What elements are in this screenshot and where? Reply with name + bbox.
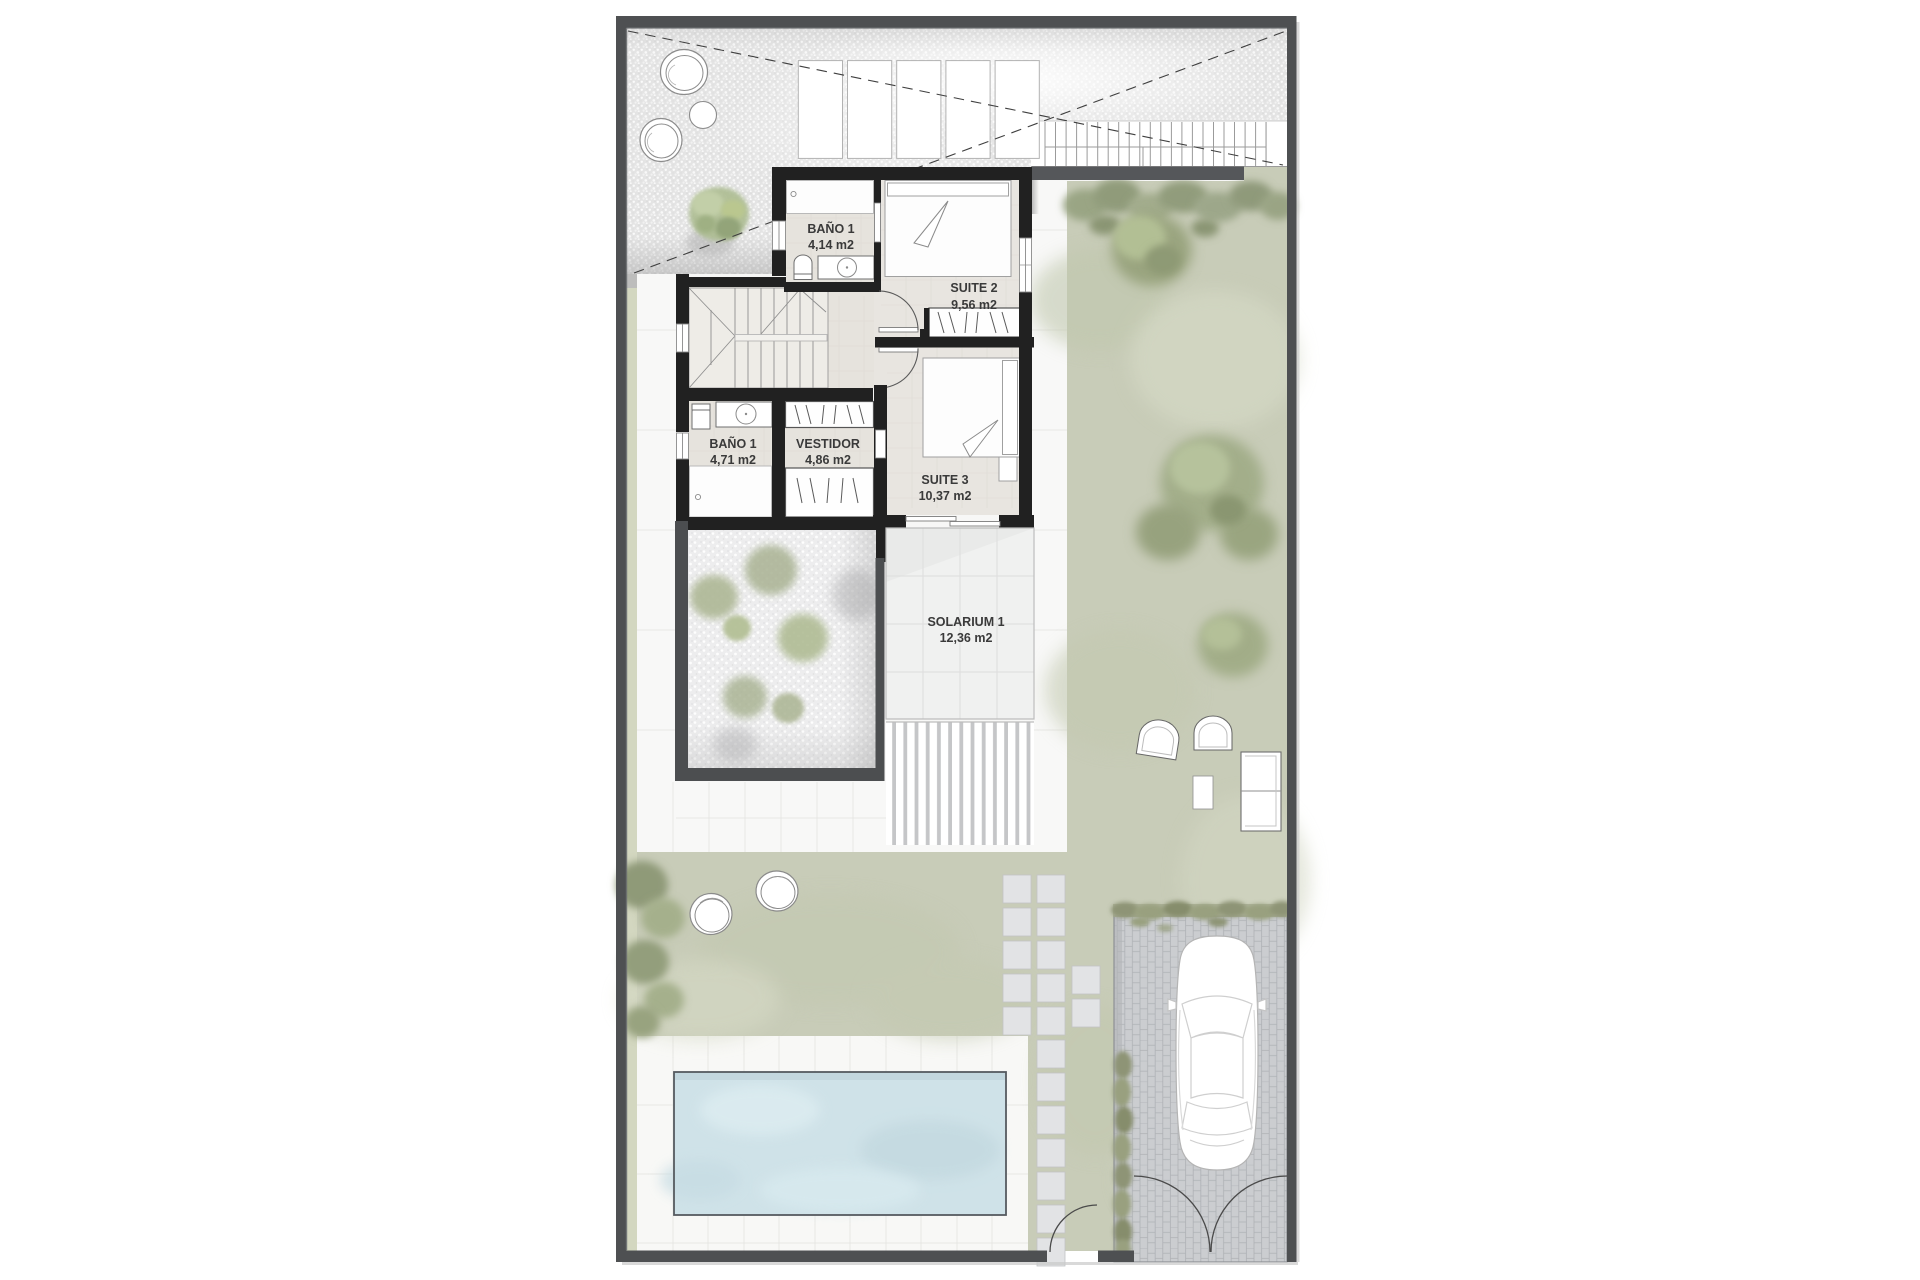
svg-text:SOLARIUM 1: SOLARIUM 1 <box>927 615 1004 629</box>
svg-text:SUITE 2: SUITE 2 <box>950 281 997 295</box>
svg-text:10,37 m2: 10,37 m2 <box>919 489 972 503</box>
svg-text:4,14 m2: 4,14 m2 <box>808 238 854 252</box>
svg-text:SUITE 3: SUITE 3 <box>921 473 968 487</box>
svg-text:9,56 m2: 9,56 m2 <box>951 298 997 312</box>
svg-text:4,86 m2: 4,86 m2 <box>805 453 851 467</box>
svg-text:BAÑO 1: BAÑO 1 <box>709 436 756 451</box>
svg-text:BAÑO 1: BAÑO 1 <box>807 221 854 236</box>
svg-text:VESTIDOR: VESTIDOR <box>796 437 860 451</box>
svg-text:4,71 m2: 4,71 m2 <box>710 453 756 467</box>
svg-text:12,36 m2: 12,36 m2 <box>940 631 993 645</box>
